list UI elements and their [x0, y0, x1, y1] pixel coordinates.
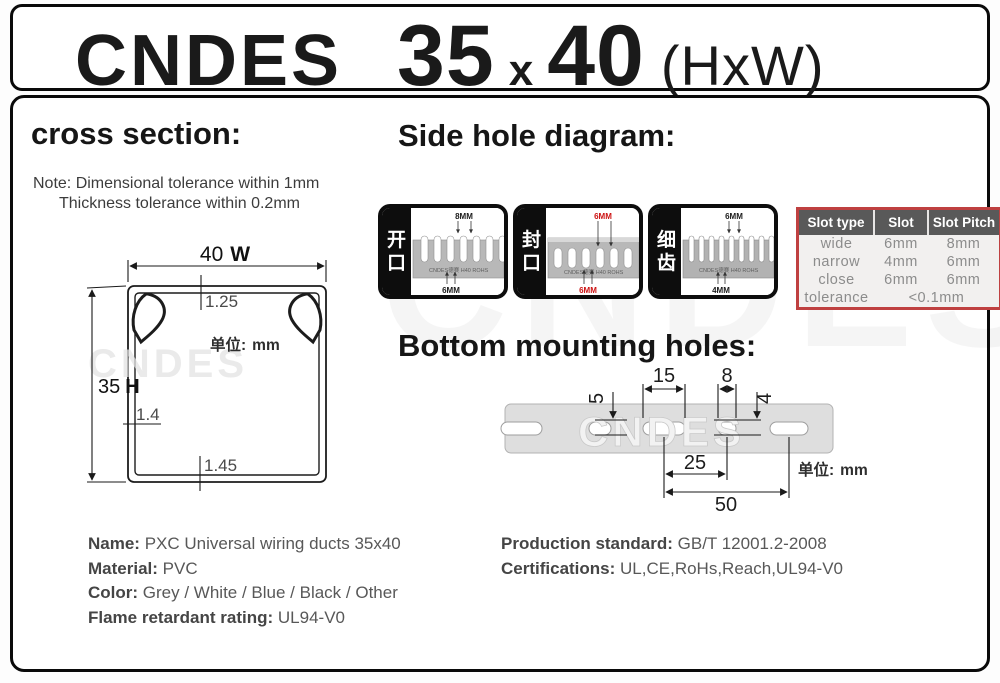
times-symbol: x: [509, 46, 533, 96]
side-hole-title: Side hole diagram:: [398, 118, 675, 154]
header-banner: CNDES 35 x 40 (HxW): [10, 4, 990, 91]
mounting-strip: CNDES: [501, 404, 833, 455]
card-fine-bottom-dim: 4MM: [712, 286, 730, 295]
slot-long-dim: 15: [653, 365, 675, 387]
card-closed-bottom-dim: 6MM: [579, 286, 597, 295]
bottom-holes-title: Bottom mounting holes:: [398, 328, 756, 364]
card-fine-top-dim: 6MM: [725, 212, 743, 221]
slot-height-short-dim: 4: [754, 393, 776, 404]
card-open-bottom-dim: 6MM: [442, 286, 460, 295]
tolerance-note: Note: Dimensional tolerance within 1mm T…: [33, 174, 319, 214]
table-row-close: close 6mm 6mm: [798, 271, 1000, 289]
card-open-label: 开 口: [382, 208, 411, 295]
brand-logo-text: CNDES: [75, 20, 342, 102]
spec-sheet-page: CNDES 35 x 40 (HxW) CNDES cross section:…: [0, 0, 1000, 683]
width-dimension-text: 40: [547, 7, 645, 106]
standards-specs: Production standard: GB/T 12001.2-2008 C…: [501, 532, 843, 581]
side-thickness-label: 1.4: [136, 405, 160, 424]
side-hole-card-fine: 细 齿 CNDES德赛 H40 ROHS: [648, 204, 778, 299]
col-header-slot: Slot: [874, 209, 928, 236]
product-specs: Name: PXC Universal wiring ducts 35x40 M…: [88, 532, 401, 631]
table-row-narrow: narrow 4mm 6mm: [798, 253, 1000, 271]
unit-label: 单位:mm: [210, 335, 280, 354]
closed-slot-profile: CNDES德赛 H40 ROHS 6MM 6MM: [546, 208, 639, 295]
card-fine-label: 细 齿: [652, 208, 681, 295]
table-row-tolerance: tolerance <0.1mm: [798, 289, 1000, 309]
card-fine-watermark: CNDES德赛 H40 ROHS: [699, 266, 759, 274]
width-dim-label: 40W: [200, 244, 250, 266]
main-content-box: CNDES cross section: Note: Dimensional t…: [10, 95, 990, 672]
card-closed-watermark: CNDES德赛 H40 ROHS: [564, 268, 624, 276]
tolerance-note-line2: Thickness tolerance within 0.2mm: [33, 194, 319, 214]
bottom-thickness-label: 1.45: [204, 456, 237, 475]
tolerance-note-line1: Note: Dimensional tolerance within 1mm: [33, 174, 319, 194]
cross-section-title: cross section:: [31, 116, 241, 152]
card-open-watermark: CNDES德赛 H40 ROHS: [429, 266, 489, 274]
spec-material: Material: PVC: [88, 557, 401, 582]
side-hole-card-closed: 封 口 CNDES德赛 H40 ROHS: [513, 204, 643, 299]
hxw-suffix-text: (HxW): [661, 33, 825, 98]
card-open-top-dim: 8MM: [455, 212, 473, 221]
spec-production-standard: Production standard: GB/T 12001.2-2008: [501, 532, 843, 557]
cross-section-diagram: CNDES 40W 35H 1.25 1.4 1.45: [63, 244, 383, 519]
top-thickness-label: 1.25: [205, 292, 238, 311]
table-row-wide: wide 6mm 8mm: [798, 235, 1000, 253]
col-header-slot-pitch: Slot Pitch: [928, 209, 1000, 236]
slot-height-long-dim: 5: [586, 393, 608, 404]
span-dim: 50: [715, 494, 737, 516]
spec-flame-rating: Flame retardant rating: UL94-V0: [88, 606, 401, 631]
spec-color: Color: Grey / White / Blue / Black / Oth…: [88, 581, 401, 606]
strip-unit-label: 单位:mm: [798, 460, 868, 479]
bottom-holes-diagram: CNDES 15 8 5 4 25 50: [493, 364, 903, 521]
open-slot-profile: CNDES德赛 H40 ROHS 8MM 6MM: [411, 208, 504, 295]
side-hole-card-open: 开 口 CNDES德赛 H40 ROHS: [378, 204, 508, 299]
slot-spec-table: Slot type Slot Slot Pitch wide 6mm 8mm n…: [796, 207, 1000, 310]
height-dim-label: 35H: [98, 376, 140, 398]
card-closed-top-dim: 6MM: [594, 212, 612, 221]
spec-name: Name: PXC Universal wiring ducts 35x40: [88, 532, 401, 557]
height-dimension-text: 35: [397, 7, 495, 106]
slot-short-dim: 8: [721, 365, 732, 387]
spec-certifications: Certifications: UL,CE,RoHs,Reach,UL94-V0: [501, 557, 843, 582]
pitch-dim: 25: [684, 452, 706, 474]
card-closed-label: 封 口: [517, 208, 546, 295]
strip-watermark: CNDES: [578, 408, 745, 455]
fine-tooth-profile: CNDES德赛 H40 ROHS 6MM 4MM: [681, 208, 774, 295]
col-header-slot-type: Slot type: [798, 209, 875, 236]
